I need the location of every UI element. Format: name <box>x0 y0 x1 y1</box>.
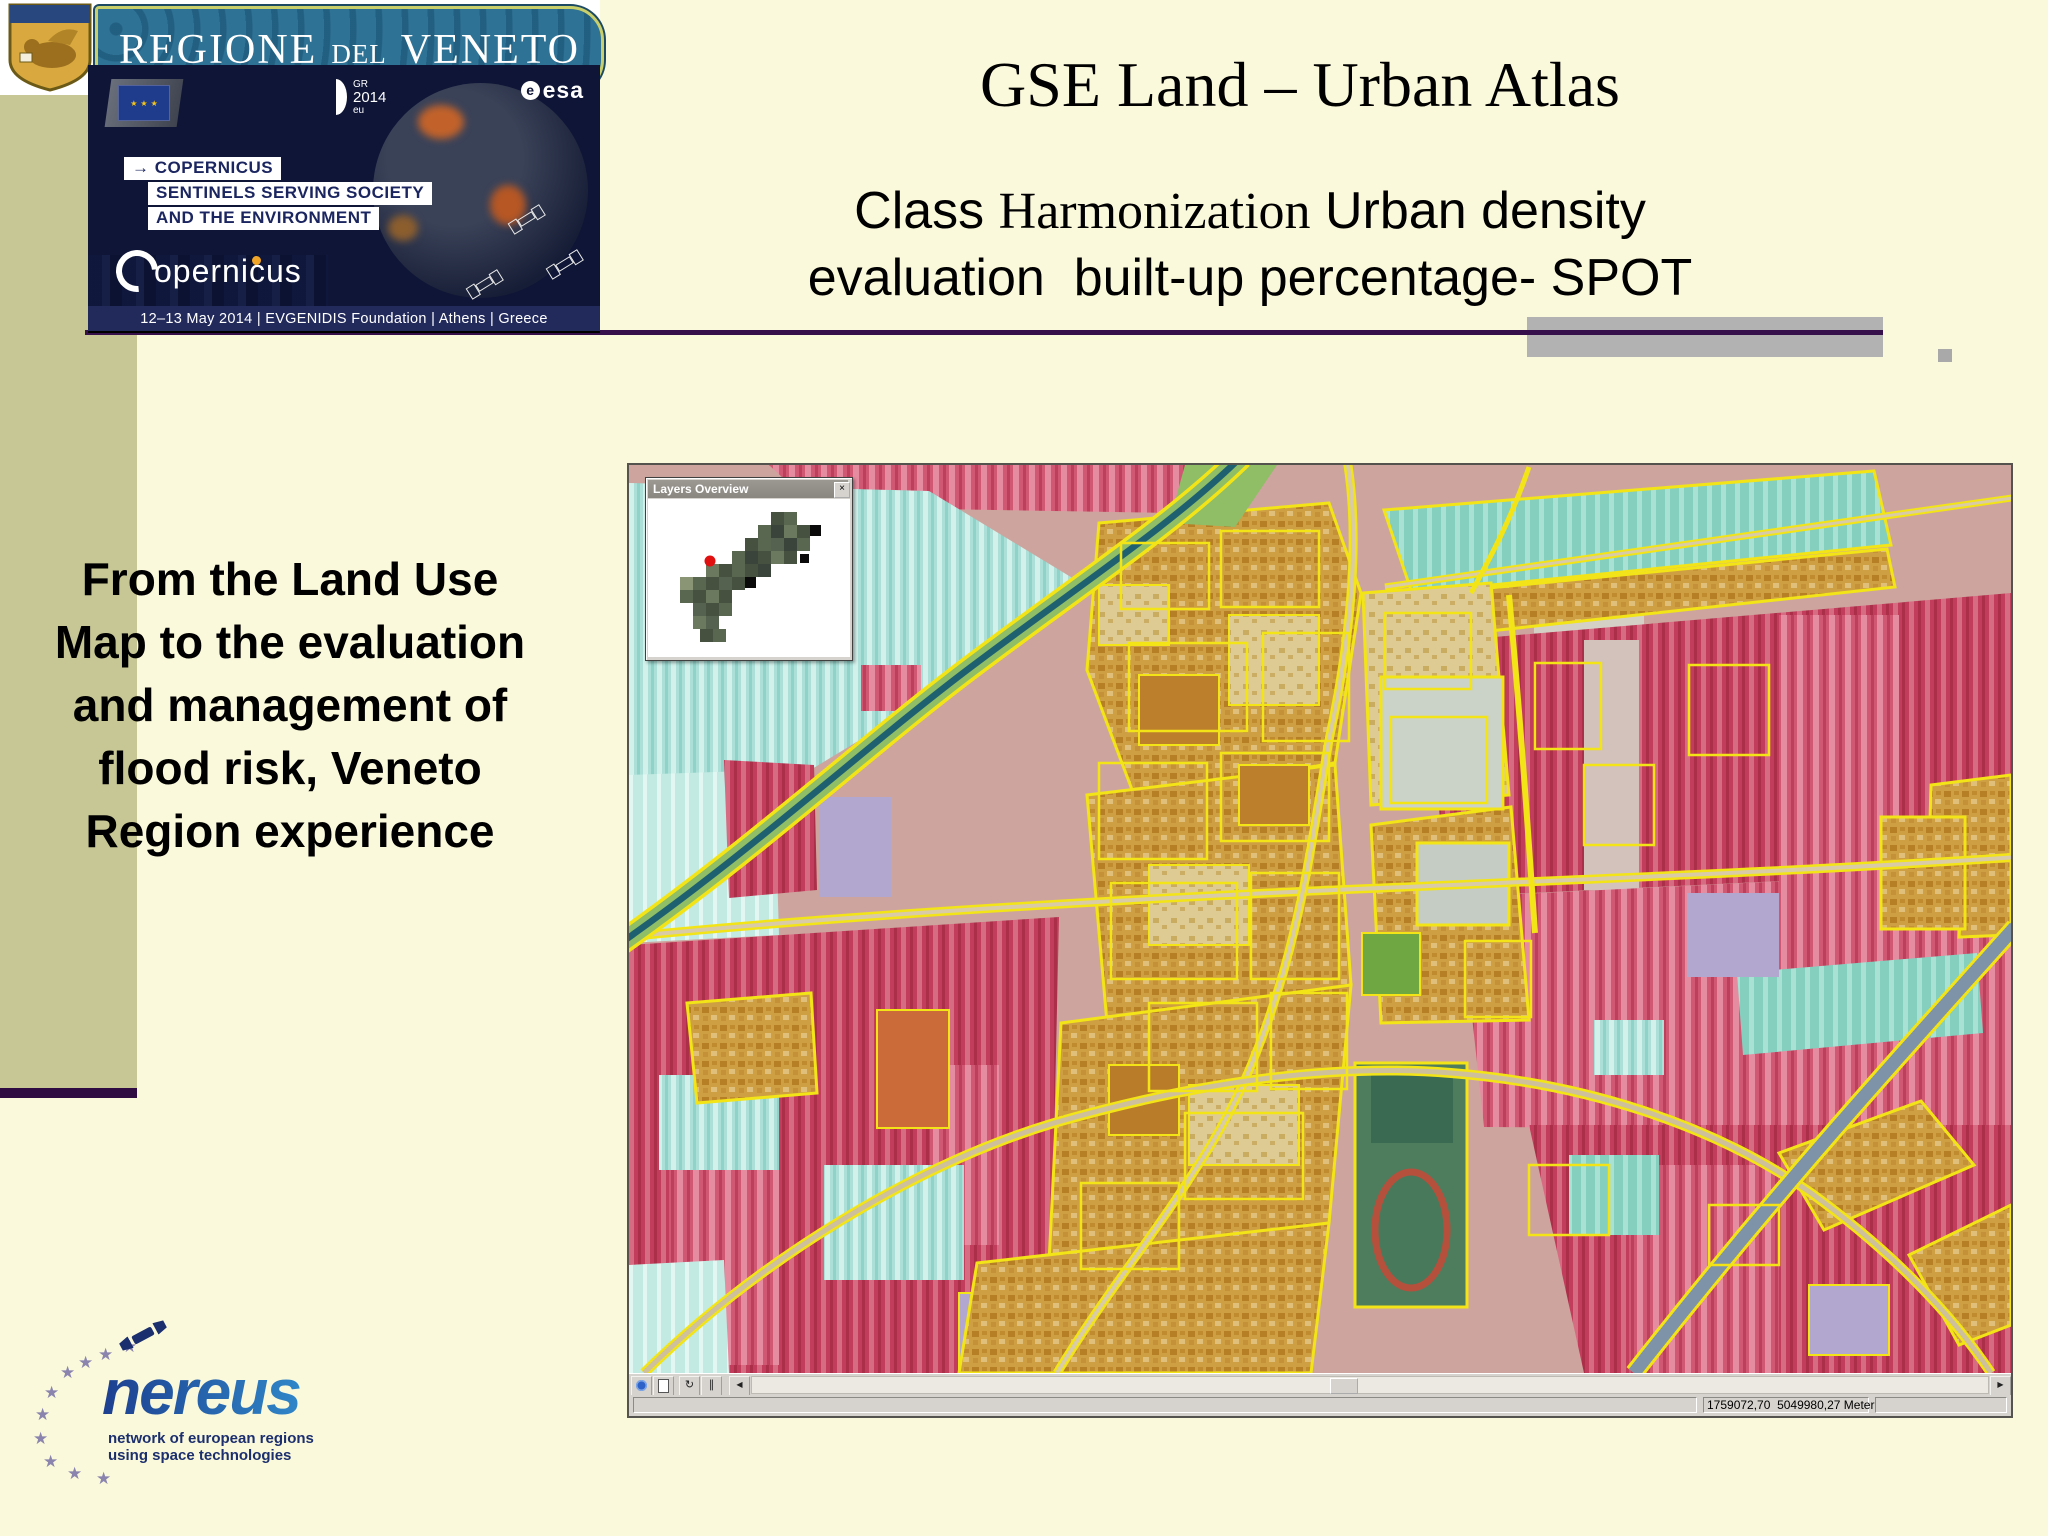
statement-line: From the Land Use <box>0 548 580 611</box>
copernicus-orange-dot-icon <box>252 256 261 265</box>
globe-view-button[interactable] <box>631 1376 652 1396</box>
gis-application-window: Layers Overview × <box>627 463 2013 1418</box>
esa-logo: e esa <box>521 77 584 104</box>
sail-icon <box>336 79 347 115</box>
layers-overview-title: Layers Overview <box>653 482 748 496</box>
satellite-icon <box>131 1326 155 1344</box>
slide-title: GSE Land – Urban Atlas <box>700 48 1900 122</box>
arrow-right-icon: → <box>132 158 150 177</box>
layers-overview-titlebar[interactable]: Layers Overview <box>648 480 848 498</box>
sports-complex <box>1355 1063 1467 1307</box>
statement-line: and management of <box>0 674 580 737</box>
gr-eu: eu <box>353 105 386 116</box>
map-bottom-bar: ↻ ∥ ◀ ▶ <box>629 1373 2011 1396</box>
nereus-star-icon: ★ <box>96 1469 111 1489</box>
nereus-star-icon: ★ <box>60 1363 75 1383</box>
copernicus-wordmark: opernicus <box>116 250 302 292</box>
nereus-star-icon: ★ <box>43 1452 58 1472</box>
eu-star-icon: ★ <box>151 99 158 108</box>
gr-year: 2014 <box>353 90 386 105</box>
veneto-lion-shield-icon <box>8 3 92 92</box>
gr2014-eu-logo: GR 2014 eu <box>336 79 386 116</box>
globe-icon <box>636 1380 647 1391</box>
layers-overview-window[interactable]: Layers Overview × <box>645 477 853 661</box>
subtitle-line-1: Class Harmonization Urban density <box>650 178 1850 245</box>
nereus-wordmark: nereus <box>102 1355 300 1429</box>
statement-line: flood risk, Veneto <box>0 737 580 800</box>
horizontal-scrollbar[interactable] <box>751 1376 1989 1394</box>
statement-line: Region experience <box>0 800 580 863</box>
left-band-purple-cap <box>0 1088 137 1098</box>
esa-dot-icon: e <box>521 81 540 100</box>
layers-overview-map[interactable] <box>648 499 850 657</box>
scroll-left-button[interactable]: ◀ <box>729 1376 750 1396</box>
scrollbar-thumb[interactable] <box>1330 1378 1358 1394</box>
copernicus-event-banner: ★ ★ ★ GR 2014 eu e esa → COPERNICUS SENT… <box>88 65 600 333</box>
refresh-view-button[interactable]: ↻ <box>679 1376 700 1396</box>
earth-fire-patch <box>388 215 418 241</box>
earth-fire-patch <box>418 105 464 139</box>
banner-headline-3: AND THE ENVIRONMENT <box>148 207 379 230</box>
eu-star-icon: ★ <box>130 99 137 108</box>
close-icon[interactable]: × <box>834 482 850 498</box>
nereus-star-icon: ★ <box>33 1429 48 1449</box>
nereus-star-icon: ★ <box>35 1405 50 1425</box>
nereus-logo: ★ ★ ★ ★ ★ ★ ★ ★ ★ ★ nereus network of eu… <box>30 1325 370 1535</box>
gray-chip <box>1938 349 1952 362</box>
statusbar-coordinates: 1759072,70 5049980,27 Meter: <box>1703 1397 1869 1413</box>
subtitle-line-2: evaluation built-up percentage- SPOT <box>650 245 1850 312</box>
layout-view-button[interactable] <box>653 1376 674 1396</box>
pause-drawing-button[interactable]: ∥ <box>701 1376 722 1396</box>
current-extent-marker <box>705 556 716 567</box>
nereus-star-icon: ★ <box>78 1353 93 1373</box>
presentation-slide: REGIONE del VENETO ★ ★ ★ GR 2014 eu e es… <box>0 0 2048 1536</box>
statement-line: Map to the evaluation <box>0 611 580 674</box>
eu-flag-icon: ★ ★ ★ <box>118 85 170 121</box>
title-gray-bar <box>1527 317 1883 357</box>
esa-wordmark: esa <box>543 77 584 104</box>
eu-star-icon: ★ <box>140 99 147 108</box>
nereus-tagline: network of european regions using space … <box>108 1430 314 1464</box>
statusbar-message-panel <box>633 1397 1697 1413</box>
banner-headline-2: SENTINELS SERVING SOCIETY <box>148 182 432 205</box>
banner-headline-1: → COPERNICUS <box>124 157 281 180</box>
nereus-star-icon: ★ <box>67 1464 82 1484</box>
statusbar: 1759072,70 5049980,27 Meter: <box>629 1395 2011 1416</box>
veneto-word-del: del <box>331 31 386 70</box>
event-info-strip: 12–13 May 2014 | EVGENIDIS Foundation | … <box>88 306 600 331</box>
page-icon <box>658 1379 669 1393</box>
statusbar-extra-panel <box>1875 1397 2007 1413</box>
nereus-star-icon: ★ <box>44 1383 59 1403</box>
left-statement: From the Land Use Map to the evaluation … <box>0 548 580 863</box>
map-canvas[interactable]: Layers Overview × <box>629 465 2011 1373</box>
region-mosaic <box>680 512 821 642</box>
scroll-right-button[interactable]: ▶ <box>1990 1376 2011 1396</box>
slide-subtitle: Class Harmonization Urban density evalua… <box>650 178 1850 312</box>
